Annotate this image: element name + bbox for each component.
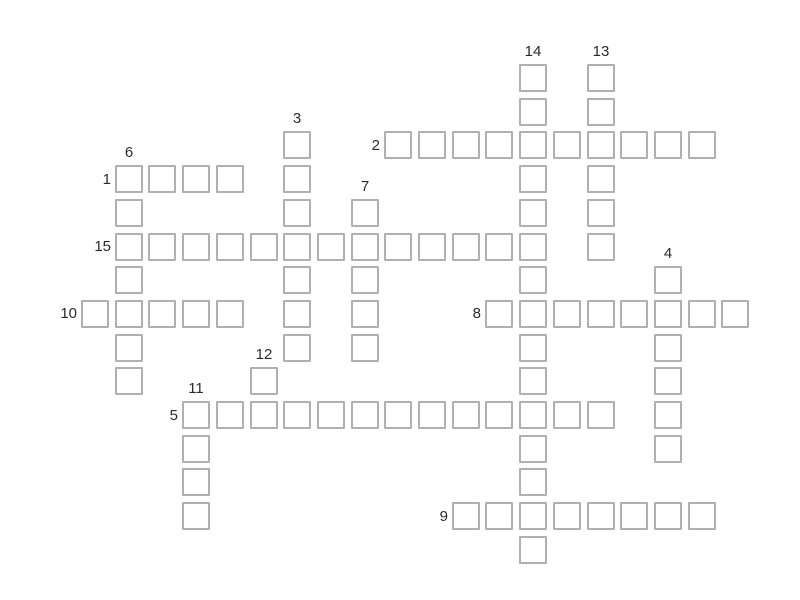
- crossword-cell[interactable]: [620, 131, 648, 159]
- crossword-cell[interactable]: [620, 502, 648, 530]
- crossword-cell[interactable]: [519, 468, 547, 496]
- crossword-cell[interactable]: [587, 131, 615, 159]
- crossword-cell[interactable]: [485, 131, 513, 159]
- crossword-cell[interactable]: [519, 131, 547, 159]
- crossword-cell[interactable]: [688, 300, 716, 328]
- crossword-cell[interactable]: [587, 199, 615, 227]
- clue-number-label: 2: [340, 137, 380, 154]
- crossword-cell[interactable]: [182, 233, 210, 261]
- crossword-cell[interactable]: [519, 502, 547, 530]
- crossword-cell[interactable]: [519, 435, 547, 463]
- crossword-cell[interactable]: [654, 502, 682, 530]
- crossword-cell[interactable]: [384, 401, 412, 429]
- crossword-cell[interactable]: [182, 502, 210, 530]
- clue-number-label: 6: [115, 144, 143, 161]
- crossword-grid: 123456789101112131415: [0, 0, 800, 600]
- crossword-cell[interactable]: [587, 233, 615, 261]
- crossword-cell[interactable]: [216, 401, 244, 429]
- clue-number-label: 1: [71, 171, 111, 188]
- crossword-cell[interactable]: [283, 165, 311, 193]
- crossword-cell[interactable]: [182, 401, 210, 429]
- crossword-cell[interactable]: [654, 300, 682, 328]
- clue-number-label: 8: [441, 305, 481, 322]
- crossword-cell[interactable]: [182, 468, 210, 496]
- crossword-cell[interactable]: [115, 367, 143, 395]
- crossword-cell[interactable]: [485, 300, 513, 328]
- crossword-cell[interactable]: [620, 300, 648, 328]
- crossword-cell[interactable]: [115, 266, 143, 294]
- crossword-cell[interactable]: [182, 165, 210, 193]
- crossword-cell[interactable]: [115, 233, 143, 261]
- clue-number-label: 9: [408, 508, 448, 525]
- crossword-cell[interactable]: [418, 131, 446, 159]
- crossword-cell[interactable]: [553, 300, 581, 328]
- crossword-cell[interactable]: [283, 334, 311, 362]
- crossword-cell[interactable]: [115, 199, 143, 227]
- crossword-cell[interactable]: [283, 131, 311, 159]
- crossword-cell[interactable]: [721, 300, 749, 328]
- clue-number-label: 5: [138, 407, 178, 424]
- crossword-cell[interactable]: [283, 401, 311, 429]
- crossword-cell[interactable]: [283, 233, 311, 261]
- clue-number-label: 14: [519, 43, 547, 60]
- crossword-cell[interactable]: [216, 300, 244, 328]
- crossword-cell[interactable]: [688, 131, 716, 159]
- crossword-cell[interactable]: [317, 401, 345, 429]
- crossword-cell[interactable]: [250, 233, 278, 261]
- crossword-cell[interactable]: [418, 233, 446, 261]
- crossword-cell[interactable]: [148, 300, 176, 328]
- crossword-cell[interactable]: [485, 233, 513, 261]
- clue-number-label: 13: [587, 43, 615, 60]
- crossword-cell[interactable]: [250, 367, 278, 395]
- crossword-cell[interactable]: [587, 502, 615, 530]
- crossword-cell[interactable]: [452, 502, 480, 530]
- crossword-cell[interactable]: [283, 266, 311, 294]
- crossword-cell[interactable]: [587, 300, 615, 328]
- crossword-cell[interactable]: [654, 401, 682, 429]
- crossword-cell[interactable]: [519, 266, 547, 294]
- crossword-cell[interactable]: [654, 131, 682, 159]
- crossword-cell[interactable]: [148, 165, 176, 193]
- crossword-cell[interactable]: [115, 165, 143, 193]
- crossword-cell[interactable]: [283, 300, 311, 328]
- clue-number-label: 4: [654, 245, 682, 262]
- crossword-cell[interactable]: [688, 502, 716, 530]
- crossword-cell[interactable]: [452, 401, 480, 429]
- crossword-cell[interactable]: [452, 131, 480, 159]
- crossword-cell[interactable]: [519, 401, 547, 429]
- clue-number-label: 7: [351, 178, 379, 195]
- crossword-cell[interactable]: [587, 165, 615, 193]
- crossword-cell[interactable]: [519, 98, 547, 126]
- crossword-cell[interactable]: [553, 131, 581, 159]
- crossword-cell[interactable]: [148, 233, 176, 261]
- crossword-cell[interactable]: [351, 401, 379, 429]
- crossword-cell[interactable]: [519, 300, 547, 328]
- crossword-cell[interactable]: [182, 300, 210, 328]
- crossword-cell[interactable]: [519, 199, 547, 227]
- crossword-cell[interactable]: [418, 401, 446, 429]
- crossword-cell[interactable]: [519, 165, 547, 193]
- crossword-cell[interactable]: [216, 165, 244, 193]
- crossword-cell[interactable]: [351, 199, 379, 227]
- crossword-cell[interactable]: [519, 334, 547, 362]
- crossword-cell[interactable]: [452, 233, 480, 261]
- crossword-cell[interactable]: [81, 300, 109, 328]
- crossword-cell[interactable]: [384, 233, 412, 261]
- crossword-cell[interactable]: [485, 401, 513, 429]
- crossword-cell[interactable]: [485, 502, 513, 530]
- crossword-cell[interactable]: [654, 334, 682, 362]
- clue-number-label: 10: [37, 305, 77, 322]
- crossword-cell[interactable]: [654, 435, 682, 463]
- clue-number-label: 15: [71, 238, 111, 255]
- crossword-cell[interactable]: [519, 367, 547, 395]
- crossword-cell[interactable]: [384, 131, 412, 159]
- crossword-cell[interactable]: [519, 233, 547, 261]
- crossword-cell[interactable]: [182, 435, 210, 463]
- crossword-cell[interactable]: [115, 300, 143, 328]
- crossword-cell[interactable]: [587, 98, 615, 126]
- crossword-cell[interactable]: [553, 502, 581, 530]
- crossword-cell[interactable]: [587, 401, 615, 429]
- crossword-cell[interactable]: [351, 233, 379, 261]
- crossword-cell[interactable]: [519, 536, 547, 564]
- crossword-cell[interactable]: [351, 266, 379, 294]
- crossword-cell[interactable]: [216, 233, 244, 261]
- clue-number-label: 3: [283, 110, 311, 127]
- crossword-cell[interactable]: [654, 367, 682, 395]
- crossword-cell[interactable]: [351, 300, 379, 328]
- crossword-cell[interactable]: [553, 401, 581, 429]
- crossword-cell[interactable]: [654, 266, 682, 294]
- crossword-cell[interactable]: [351, 334, 379, 362]
- crossword-cell[interactable]: [115, 334, 143, 362]
- crossword-cell[interactable]: [519, 64, 547, 92]
- crossword-cell[interactable]: [283, 199, 311, 227]
- clue-number-label: 11: [182, 380, 210, 397]
- clue-number-label: 12: [250, 346, 278, 363]
- crossword-cell[interactable]: [317, 233, 345, 261]
- crossword-cell[interactable]: [587, 64, 615, 92]
- crossword-cell[interactable]: [250, 401, 278, 429]
